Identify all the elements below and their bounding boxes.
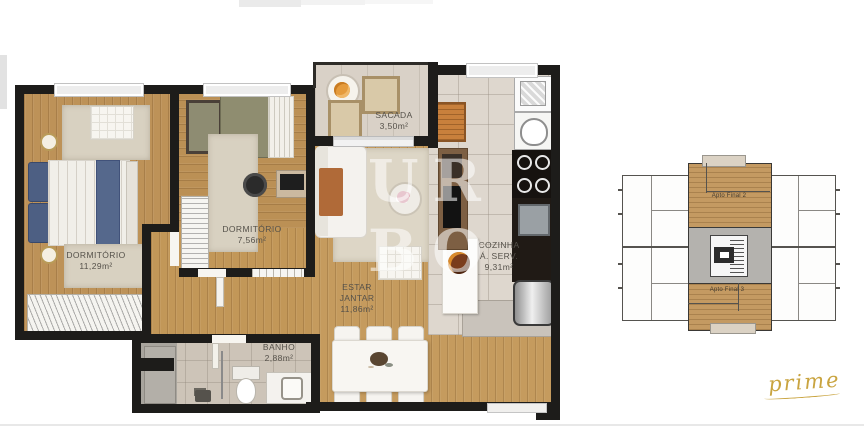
wall: [142, 224, 151, 336]
window: [203, 83, 291, 97]
keyplan-unit: [622, 247, 690, 321]
keyplan-stub: [618, 263, 623, 265]
watermark: UR BO: [368, 146, 497, 286]
keyplan: Apto Final 2 Apto Final 3: [618, 155, 840, 333]
office-chair: [243, 173, 267, 197]
window: [54, 83, 144, 97]
room-area: 11,86m²: [322, 304, 392, 315]
door-leaf: [212, 343, 219, 369]
dining-table: [332, 340, 428, 392]
desk-monitor: [280, 174, 304, 190]
wall-opening: [252, 269, 304, 277]
bed-foot-bench: [126, 161, 138, 245]
quilt: [90, 106, 134, 140]
room-area: 2,88m²: [244, 353, 314, 364]
wall-stub: [140, 358, 174, 371]
room-name: DORMITÓRIO: [197, 224, 307, 235]
keyplan-stub: [618, 287, 623, 289]
room-label-dormitorio-1: DORMITÓRIO 11,29m²: [41, 250, 151, 272]
shower-box: [144, 346, 176, 404]
page-edge-artifact: [301, 0, 365, 5]
fridge: [513, 280, 555, 326]
table-centerpiece: [370, 352, 388, 366]
door-opening: [212, 335, 246, 343]
room-subname: JANTAR: [322, 293, 392, 304]
keyplan-stub: [835, 287, 840, 289]
kitchen-sink: [518, 204, 550, 236]
page-edge-artifact: [0, 55, 7, 109]
keyplan-stub: [835, 263, 840, 265]
wall: [170, 85, 179, 232]
page-edge-artifact: [239, 0, 301, 7]
wall: [306, 85, 315, 277]
watermark-line: UR: [368, 146, 497, 216]
flower-pot: [334, 82, 350, 98]
bathroom-sink: [281, 377, 303, 400]
room-label-sacada: SACADA 3,50m²: [352, 110, 436, 132]
bed-headboard-cushion: [28, 162, 50, 202]
wall: [311, 136, 335, 146]
shower-rail: [221, 351, 223, 399]
room-label-dormitorio-2: DORMITÓRIO 7,56m²: [197, 224, 307, 246]
room-label-banho: BANHO 2,88m²: [244, 342, 314, 364]
keyplan-stub: [618, 213, 623, 215]
stove-burner: [535, 155, 550, 170]
balcony-wall: [313, 62, 316, 88]
keyplan-balcony-tab: [710, 323, 756, 334]
keyplan-unit: [770, 175, 836, 247]
room-label-estar: ESTAR JANTAR 11,86m²: [322, 282, 392, 315]
stove-burner: [517, 178, 532, 193]
floorplan-image: DORMITÓRIO 11,29m² DORMITÓRIO 7,56m² SAC…: [0, 0, 864, 432]
keyplan-unit-label: Apto Final 2: [694, 193, 764, 199]
door-leaf: [216, 277, 224, 307]
room-area: 7,56m²: [197, 235, 307, 246]
wall: [132, 404, 320, 413]
wall: [15, 85, 24, 340]
sofa-throw: [319, 168, 343, 216]
bed-pillows: [268, 96, 294, 158]
toilet: [236, 378, 256, 404]
bed-headboard-cushion: [28, 203, 50, 243]
stove-burner: [535, 178, 550, 193]
keyplan-stub: [835, 189, 840, 191]
watermark-line: BO: [368, 216, 497, 286]
tub-basin: [520, 118, 548, 146]
bed-runner: [96, 160, 120, 247]
keyplan-wall: [706, 191, 770, 192]
keyplan-unit: [770, 247, 836, 321]
washing-machine-lid: [520, 81, 546, 106]
bench: [436, 102, 466, 142]
ceiling-light: [40, 133, 58, 151]
keyplan-unit-label: Apto Final 3: [692, 287, 762, 293]
window: [466, 63, 538, 78]
room-name: SACADA: [352, 110, 436, 121]
room-name: DORMITÓRIO: [41, 250, 151, 261]
shower-fittings: [195, 390, 211, 402]
stove-burner: [517, 155, 532, 170]
keyplan-stub: [835, 213, 840, 215]
wall: [551, 65, 560, 411]
keyplan-wall: [688, 303, 738, 304]
room-area: 3,50m²: [352, 121, 436, 132]
room-name: BANHO: [244, 342, 314, 353]
wall: [15, 331, 142, 340]
wall: [132, 334, 141, 413]
balcony-wall: [313, 62, 432, 65]
keyplan-wall: [706, 163, 707, 193]
door-opening: [170, 232, 179, 266]
balcony-pouf: [362, 76, 400, 114]
page-edge-artifact: [365, 0, 433, 4]
keyplan-elevator-car: [720, 252, 729, 258]
page-bottom-rule: [0, 424, 864, 426]
room-area: 11,29m²: [41, 261, 151, 272]
keyplan-balcony-tab: [702, 155, 746, 167]
keyplan-stub: [618, 189, 623, 191]
wardrobe: [27, 294, 143, 334]
keyplan-unit: [622, 175, 690, 247]
window: [487, 403, 547, 413]
door-opening: [198, 269, 226, 277]
